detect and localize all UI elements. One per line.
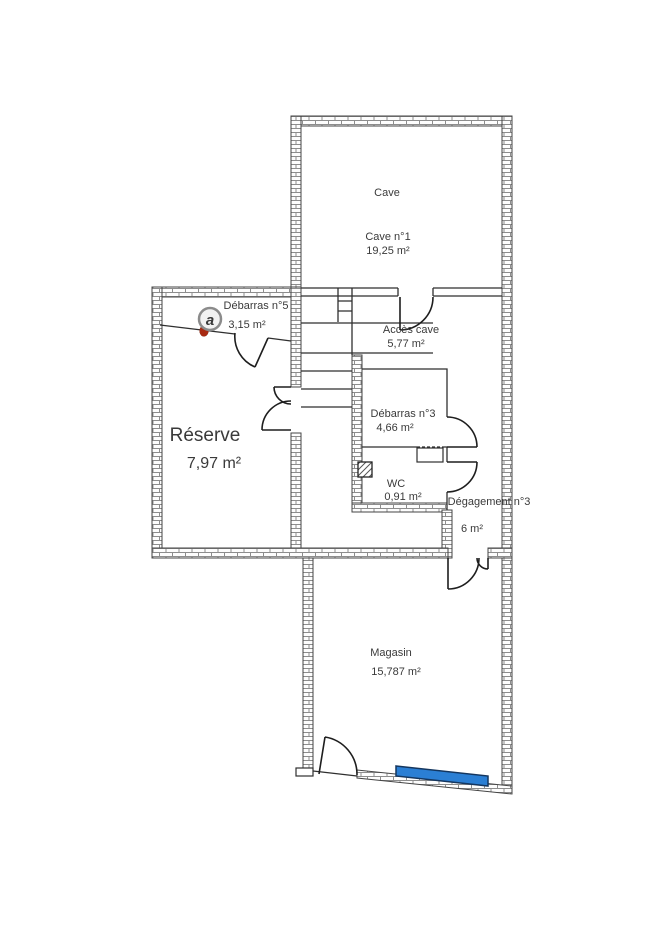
wall-cave-top [291,116,512,126]
cave-label: Cave [374,187,400,199]
wall-debarras5-top [152,287,301,297]
stair-upper-flight [338,288,352,355]
cave-sublabel: Cave n°1 [365,231,410,243]
door-debarras3 [447,417,477,447]
debarras5-label: Débarras n°5 [224,300,289,312]
acces-cave-label: Accès cave [383,324,439,336]
magasin-door-stub [296,768,313,776]
room-labels: Cave Cave n°1 19,25 m² Débarras n°5 3,15… [170,187,531,678]
logo-letter: a [206,312,214,329]
wall-south-band [152,548,448,558]
stair-treads [301,371,352,407]
degagement-area: 6 m² [461,523,483,535]
debarras3-label: Débarras n°3 [371,408,436,420]
wall-south-stub [488,548,512,558]
wall-wc-bottom [352,503,447,512]
floor-plan-page: a Cave Cave n°1 19,25 m² Débarras n°5 3,… [0,0,671,950]
wall-reserve-right-lower [291,433,301,558]
acces-cave-area: 5,77 m² [387,338,425,350]
wall-outer-right [502,116,512,790]
reserve-area: 7,97 m² [187,455,242,472]
floor-plan-svg: a Cave Cave n°1 19,25 m² Débarras n°5 3,… [0,0,671,950]
door-debarras5 [235,333,268,367]
debarras3-area: 4,66 m² [376,422,414,434]
wall-central [352,355,362,510]
wc-area: 0,91 m² [384,491,422,503]
duct-hatched [358,462,372,477]
door-degagement-double [448,558,488,589]
reserve-label: Réserve [170,425,241,446]
wall-outer-left [152,287,162,558]
door-wc [447,462,477,492]
wc-label: WC [387,478,405,490]
magasin-label: Magasin [370,647,412,659]
cave-bottom-edge [301,288,502,296]
debarras5-area: 3,15 m² [228,319,266,331]
cave-area: 19,25 m² [366,245,410,257]
closet-box [417,448,443,462]
magasin-area: 15,787 m² [371,666,421,678]
door-reserve-lower [262,401,291,430]
wall-reserve-right-upper [291,287,301,387]
wall-magasin-left [303,558,313,770]
door-magasin-entry [319,737,357,775]
wall-cave-left [291,116,301,287]
degagement-label: Dégagement n°3 [448,496,531,508]
debarras5-partition [160,325,291,341]
